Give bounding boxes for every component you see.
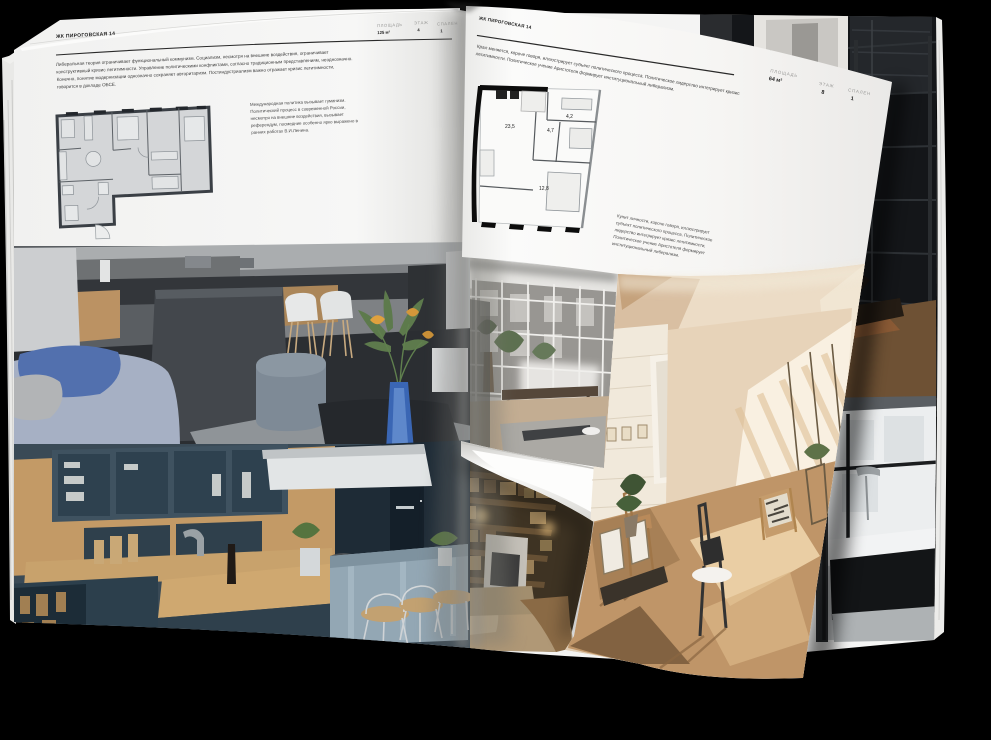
- svg-text:125 м²: 125 м²: [377, 30, 390, 36]
- svg-text:ЭТАЖ: ЭТАЖ: [414, 20, 429, 26]
- svg-text:4,2: 4,2: [566, 114, 573, 120]
- svg-text:23,5: 23,5: [505, 124, 515, 130]
- svg-text:12,8: 12,8: [539, 186, 549, 192]
- svg-text:4,7: 4,7: [547, 128, 554, 134]
